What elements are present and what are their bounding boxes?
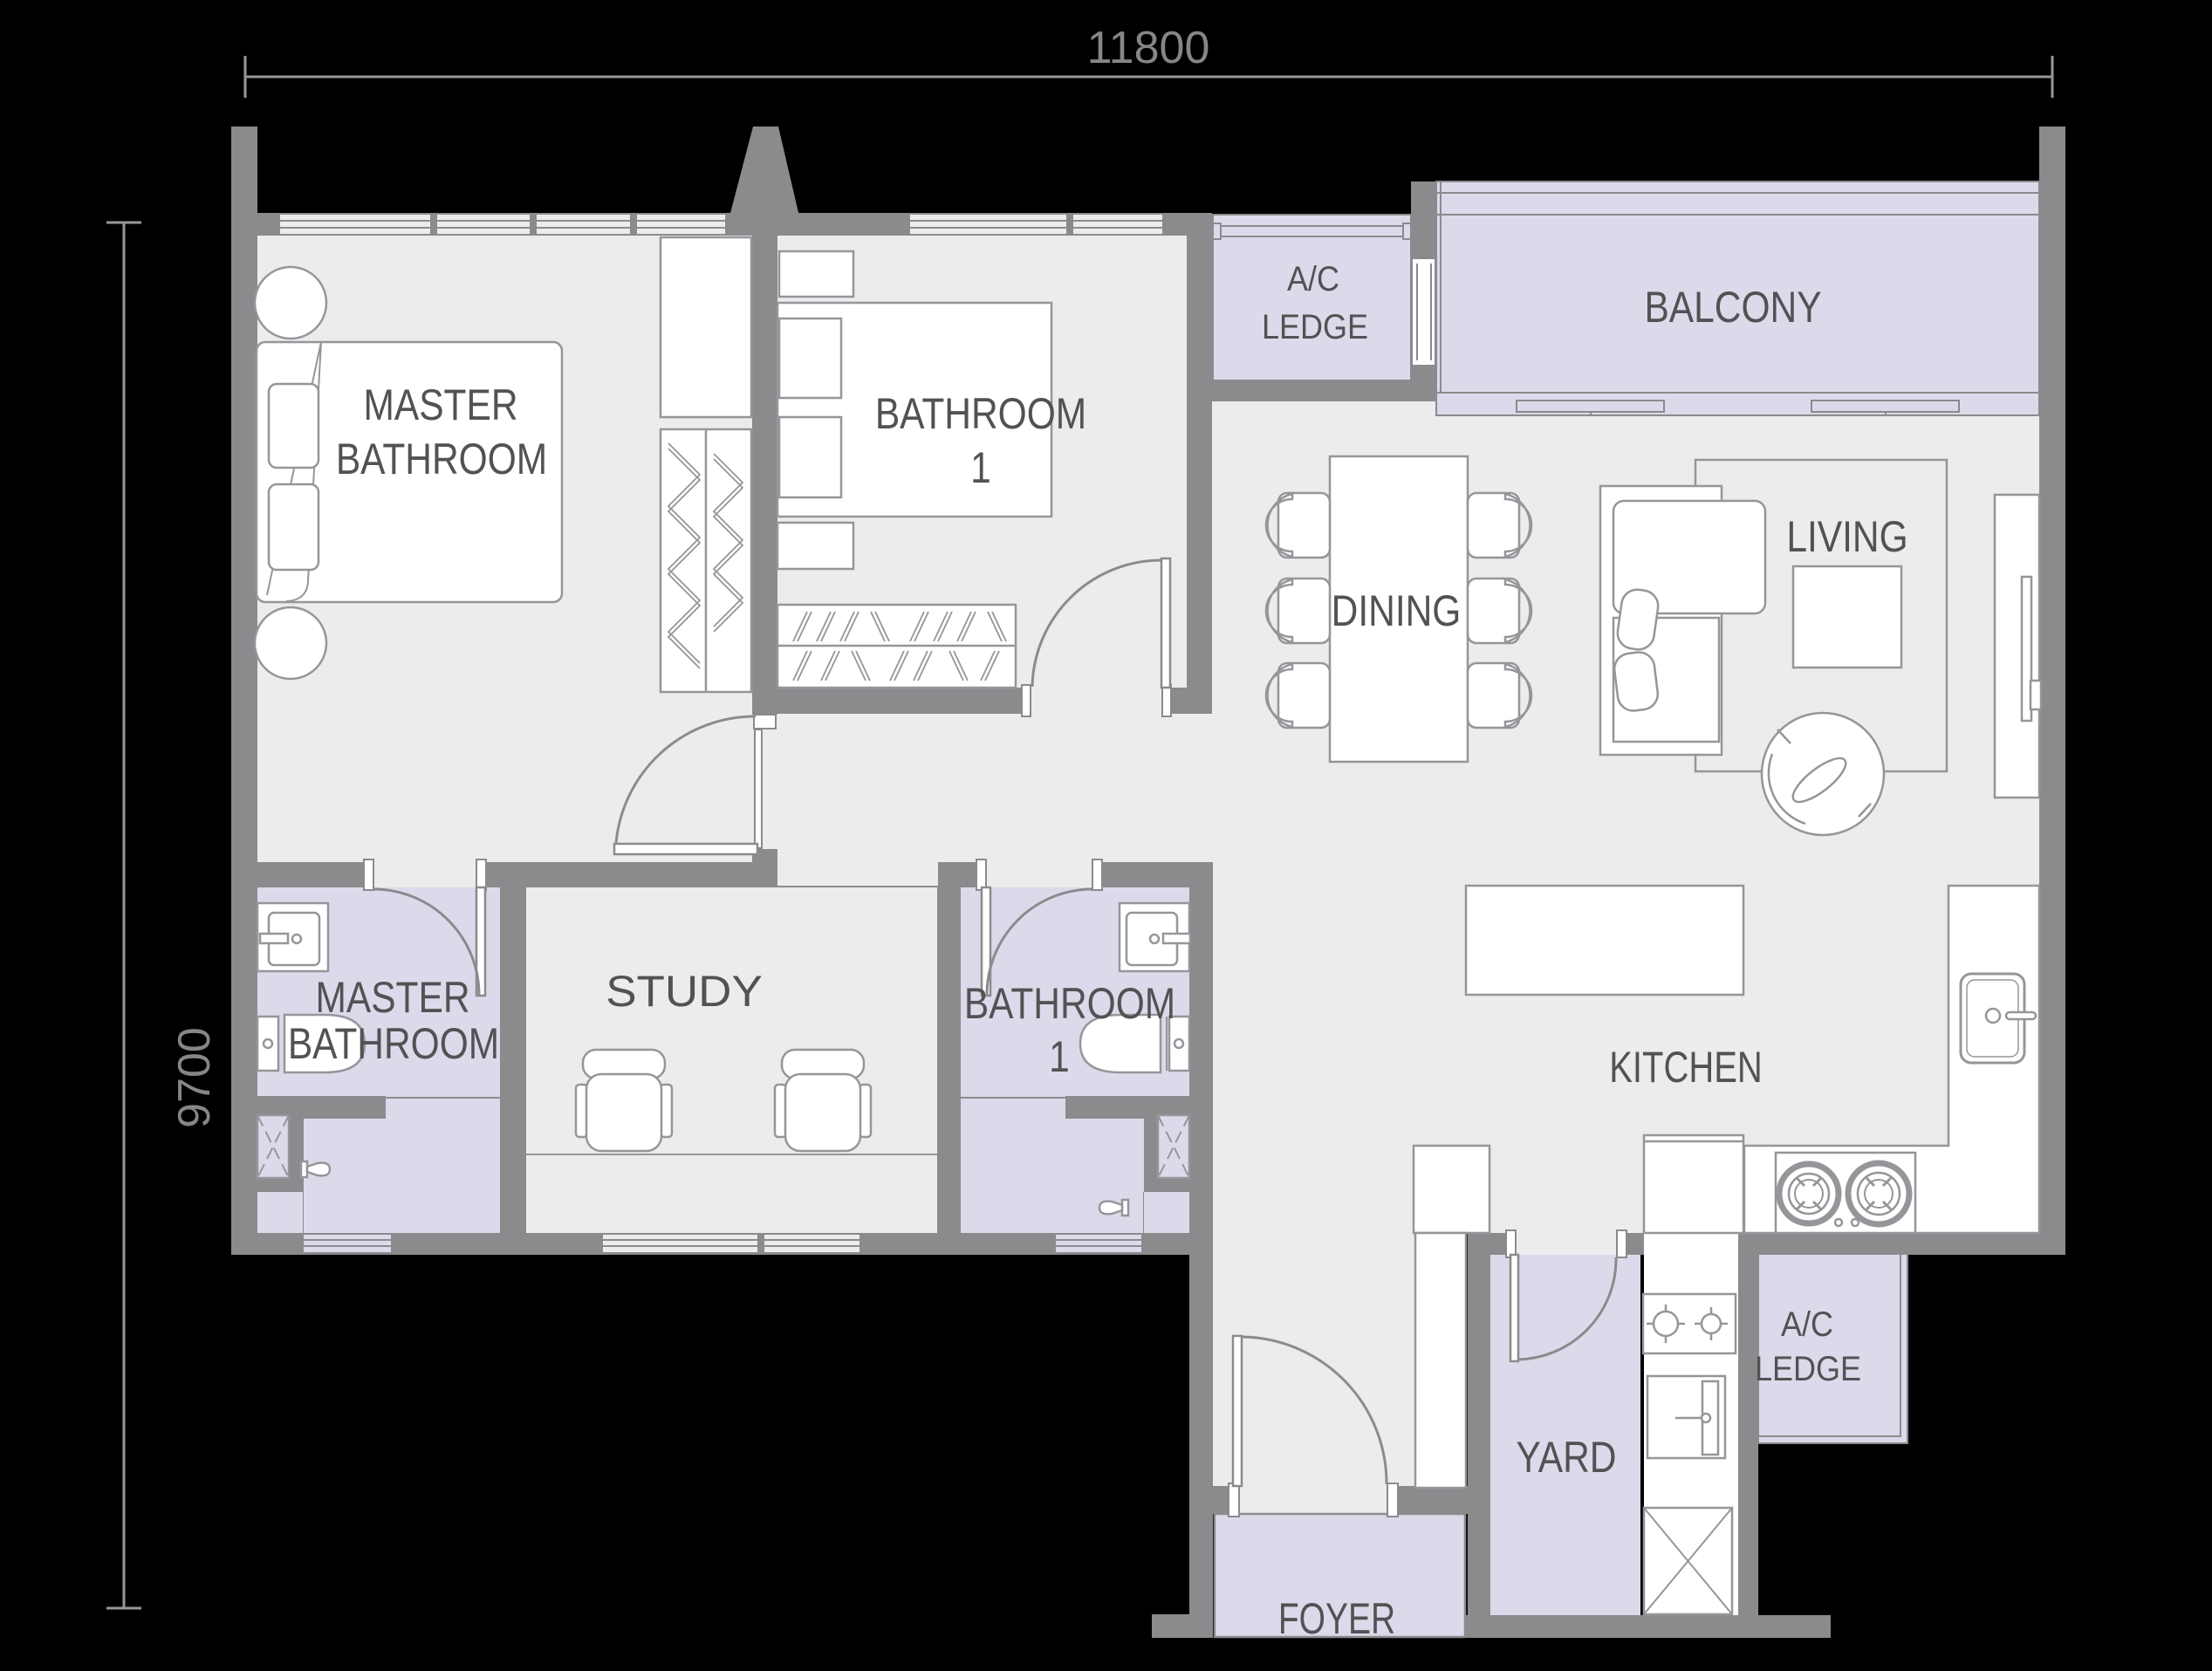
svg-text:A/C: A/C (1287, 260, 1339, 298)
svg-text:BATHROOM: BATHROOM (336, 435, 547, 483)
svg-text:MASTER: MASTER (363, 380, 517, 429)
svg-text:MASTER: MASTER (315, 973, 469, 1022)
svg-text:BALCONY: BALCONY (1644, 283, 1821, 332)
svg-text:BATHROOM: BATHROOM (875, 389, 1086, 438)
svg-text:LEDGE: LEDGE (1262, 308, 1368, 346)
svg-text:KITCHEN: KITCHEN (1609, 1043, 1763, 1092)
svg-text:1: 1 (970, 443, 991, 492)
svg-text:YARD: YARD (1517, 1433, 1617, 1482)
svg-text:BATHROOM: BATHROOM (964, 979, 1175, 1028)
svg-text:9700: 9700 (169, 1027, 220, 1128)
svg-text:A/C: A/C (1781, 1305, 1833, 1344)
svg-text:LEDGE: LEDGE (1755, 1350, 1861, 1388)
svg-text:BATHROOM: BATHROOM (288, 1019, 499, 1068)
svg-text:LIVING: LIVING (1786, 512, 1907, 561)
svg-text:FOYER: FOYER (1278, 1593, 1395, 1643)
svg-text:11800: 11800 (1087, 23, 1210, 73)
svg-text:DINING: DINING (1332, 586, 1462, 635)
svg-text:STUDY: STUDY (606, 966, 763, 1015)
svg-text:1: 1 (1049, 1032, 1070, 1081)
